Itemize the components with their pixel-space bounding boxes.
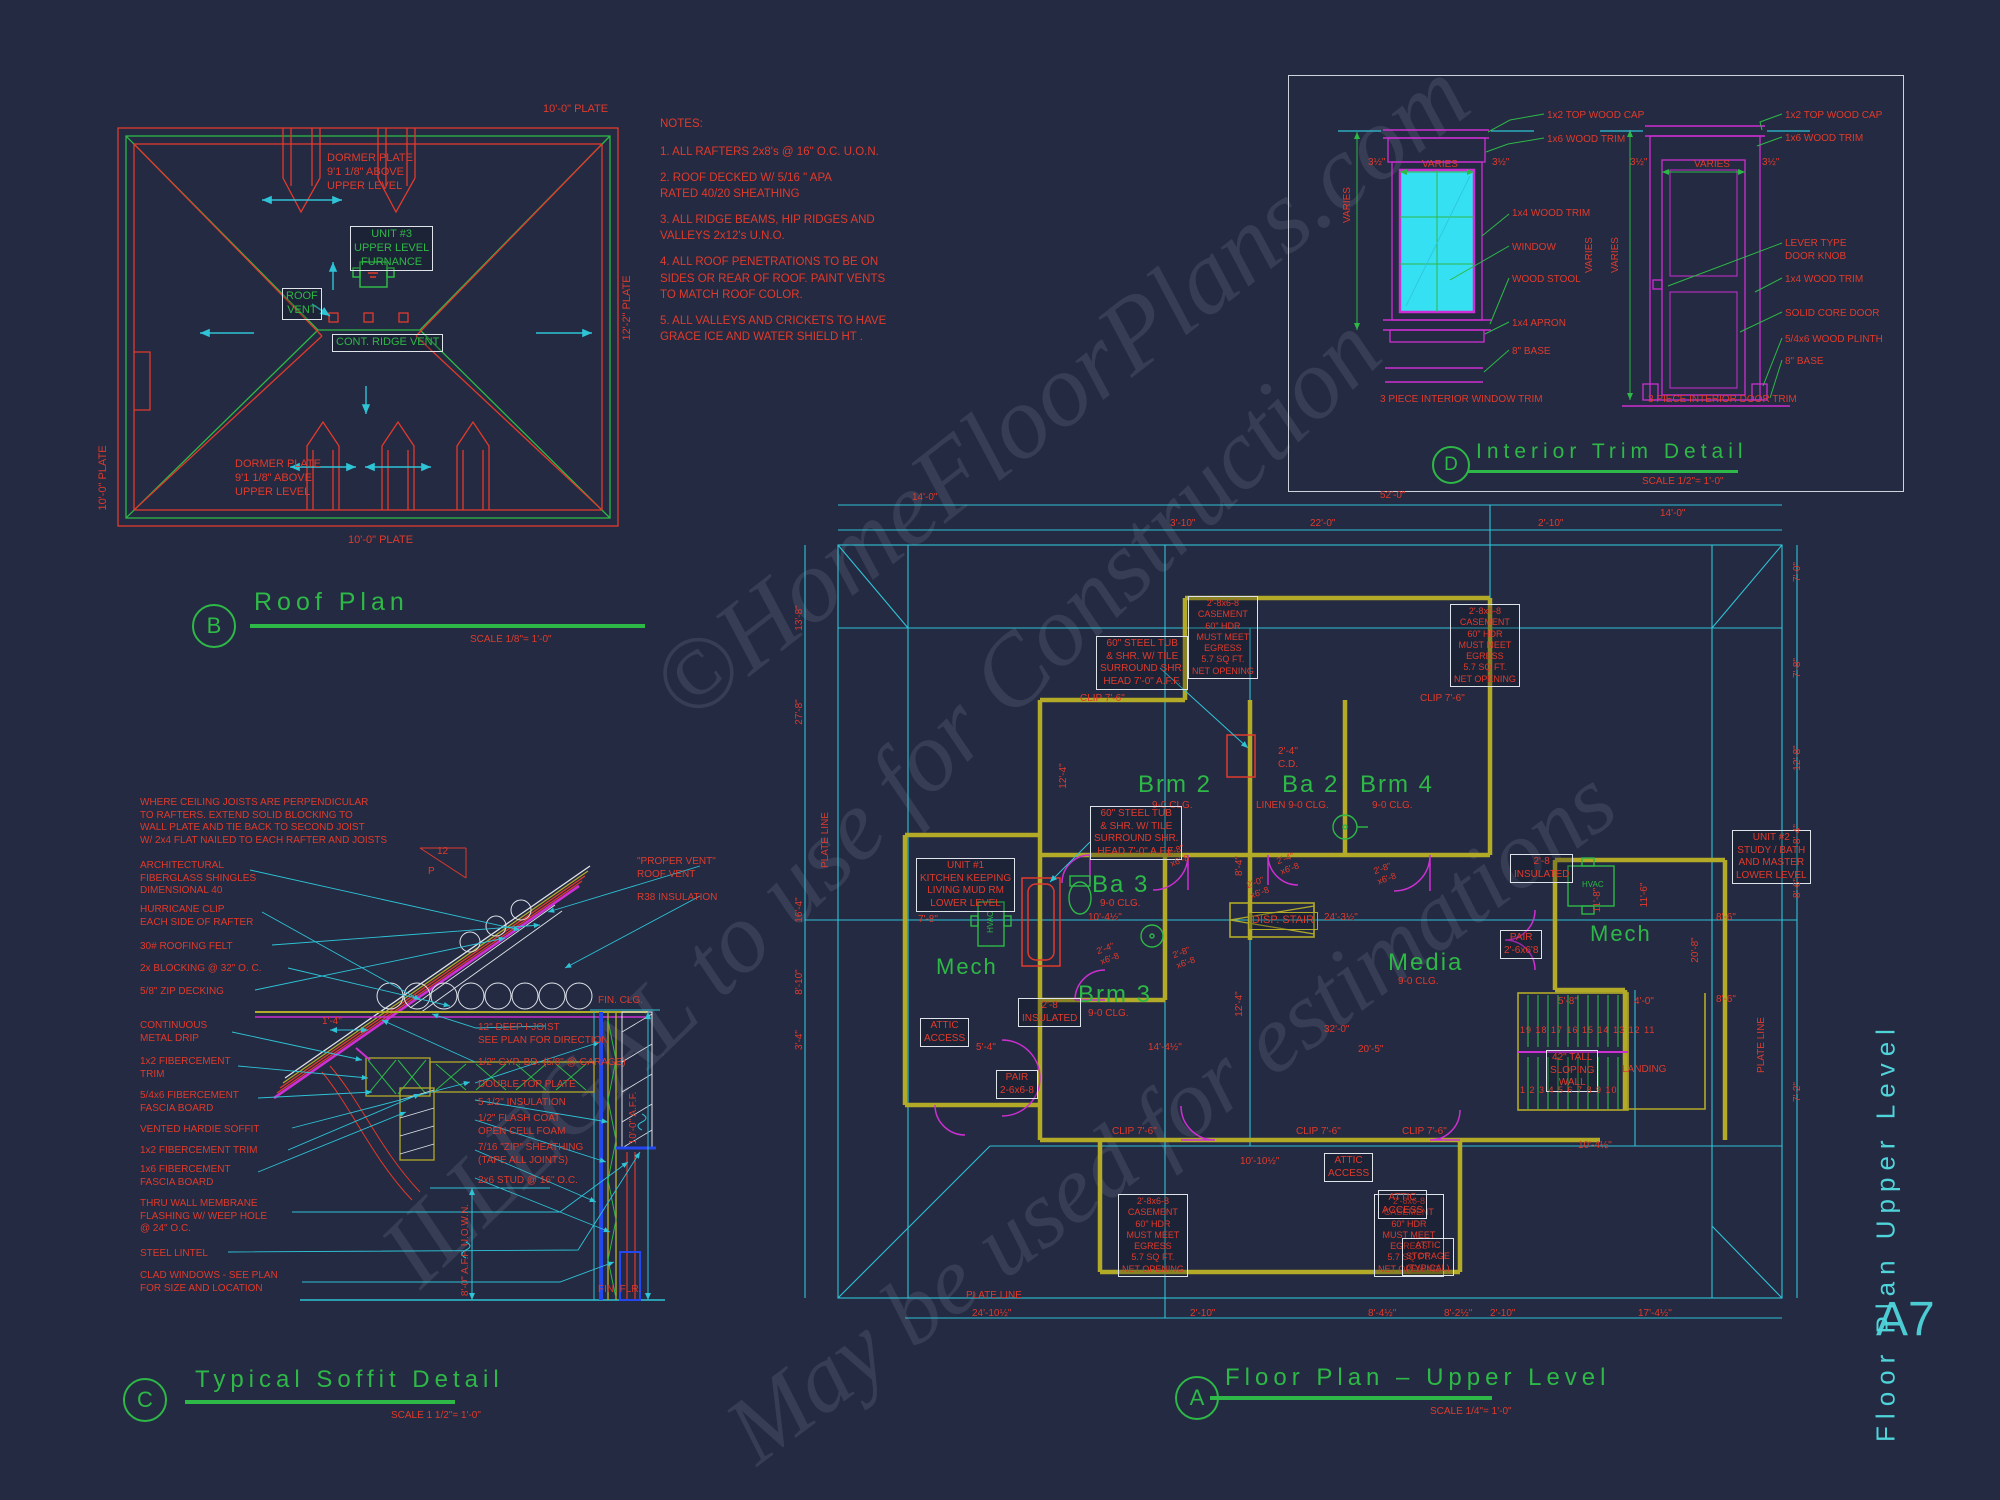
title-floor-plan: A Floor Plan – Upper Level SCALE 1/4"= 1… bbox=[1155, 1358, 1575, 1428]
title-scale: SCALE 1/8"= 1'-0" bbox=[470, 634, 552, 645]
title-scale: SCALE 1 1/2"= 1'-0" bbox=[391, 1410, 481, 1421]
note-item: 1. ALL RAFTERS 2x8's @ 16" O.C. U.O.N. bbox=[660, 144, 970, 160]
note-item: 2. ROOF DECKED W/ 5/16 " APA RATED 40/20… bbox=[660, 170, 970, 202]
title-roof-plan: B Roof Plan SCALE 1/8"= 1'-0" bbox=[192, 588, 662, 658]
title-bubble-c: C bbox=[123, 1378, 167, 1422]
sheet-side-title: Floor Plan Upper Level bbox=[1871, 1022, 1902, 1442]
floor-plan-drawing bbox=[805, 505, 1797, 1318]
title-text: Roof Plan bbox=[254, 588, 409, 617]
title-underline bbox=[1468, 470, 1738, 473]
title-scale: SCALE 1/2"= 1'-0" bbox=[1642, 476, 1724, 487]
title-text: Interior Trim Detail bbox=[1476, 440, 1748, 464]
title-interior-trim-detail: D Interior Trim Detail SCALE 1/2"= 1'-0" bbox=[1420, 438, 1820, 498]
notes-heading: NOTES: bbox=[660, 118, 970, 130]
title-text: Typical Soffit Detail bbox=[195, 1366, 504, 1394]
cad-sheet: ©HomeFloorPlans.com ILLEGAL to use for C… bbox=[0, 0, 2000, 1500]
title-text: Floor Plan – Upper Level bbox=[1225, 1364, 1610, 1392]
title-bubble-d: D bbox=[1432, 446, 1470, 484]
interior-trim-detail-frame bbox=[1288, 75, 1904, 492]
sheet-number: A7 bbox=[1876, 1292, 1935, 1347]
title-underline bbox=[1210, 1396, 1492, 1400]
roof-plan-drawing bbox=[118, 128, 618, 526]
title-soffit-detail: C Typical Soffit Detail SCALE 1 1/2"= 1'… bbox=[123, 1362, 523, 1432]
roof-notes: NOTES: 1. ALL RAFTERS 2x8's @ 16" O.C. U… bbox=[660, 118, 970, 355]
title-underline bbox=[250, 624, 645, 628]
soffit-detail-drawing bbox=[228, 848, 700, 1300]
title-bubble-b: B bbox=[192, 604, 236, 648]
title-scale: SCALE 1/4"= 1'-0" bbox=[1430, 1406, 1512, 1417]
note-item: 4. ALL ROOF PENETRATIONS TO BE ON SIDES … bbox=[660, 254, 970, 302]
title-underline bbox=[185, 1400, 455, 1404]
note-item: 3. ALL RIDGE BEAMS, HIP RIDGES AND VALLE… bbox=[660, 212, 970, 244]
note-item: 5. ALL VALLEYS AND CRICKETS TO HAVE GRAC… bbox=[660, 313, 970, 345]
